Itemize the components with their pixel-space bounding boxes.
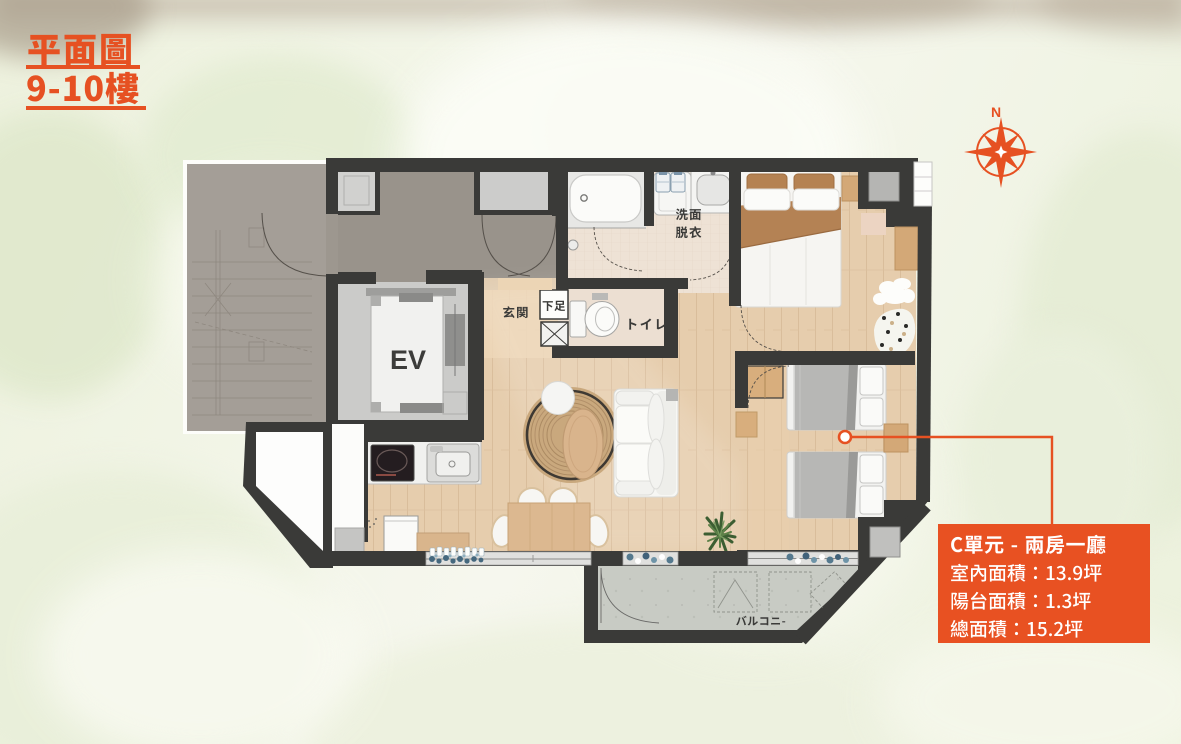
svg-text:N: N <box>991 104 1001 120</box>
svg-text:EV: EV <box>390 345 426 375</box>
